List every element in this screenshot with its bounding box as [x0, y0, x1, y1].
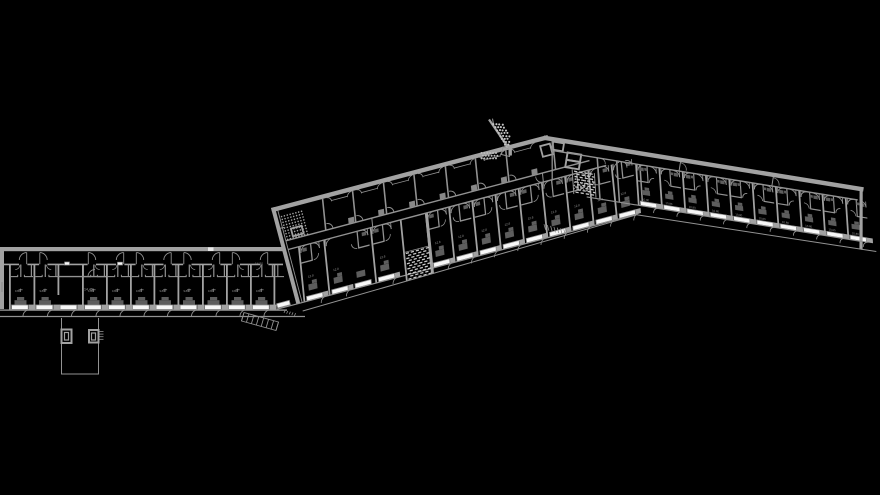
svg-text:9.80: 9.80 [256, 289, 262, 293]
svg-text:9.80: 9.80 [15, 289, 21, 293]
svg-text:9.80: 9.80 [160, 289, 166, 293]
svg-text:9.80: 9.80 [184, 289, 190, 293]
svg-text:9.80: 9.80 [136, 289, 142, 293]
svg-text:9.80: 9.80 [112, 289, 118, 293]
svg-text:14.45: 14.45 [84, 288, 93, 292]
svg-text:9.80: 9.80 [208, 289, 214, 293]
svg-text:14.30: 14.30 [255, 262, 263, 266]
svg-text:9.80: 9.80 [232, 289, 238, 293]
svg-text:9.80: 9.80 [40, 289, 46, 293]
